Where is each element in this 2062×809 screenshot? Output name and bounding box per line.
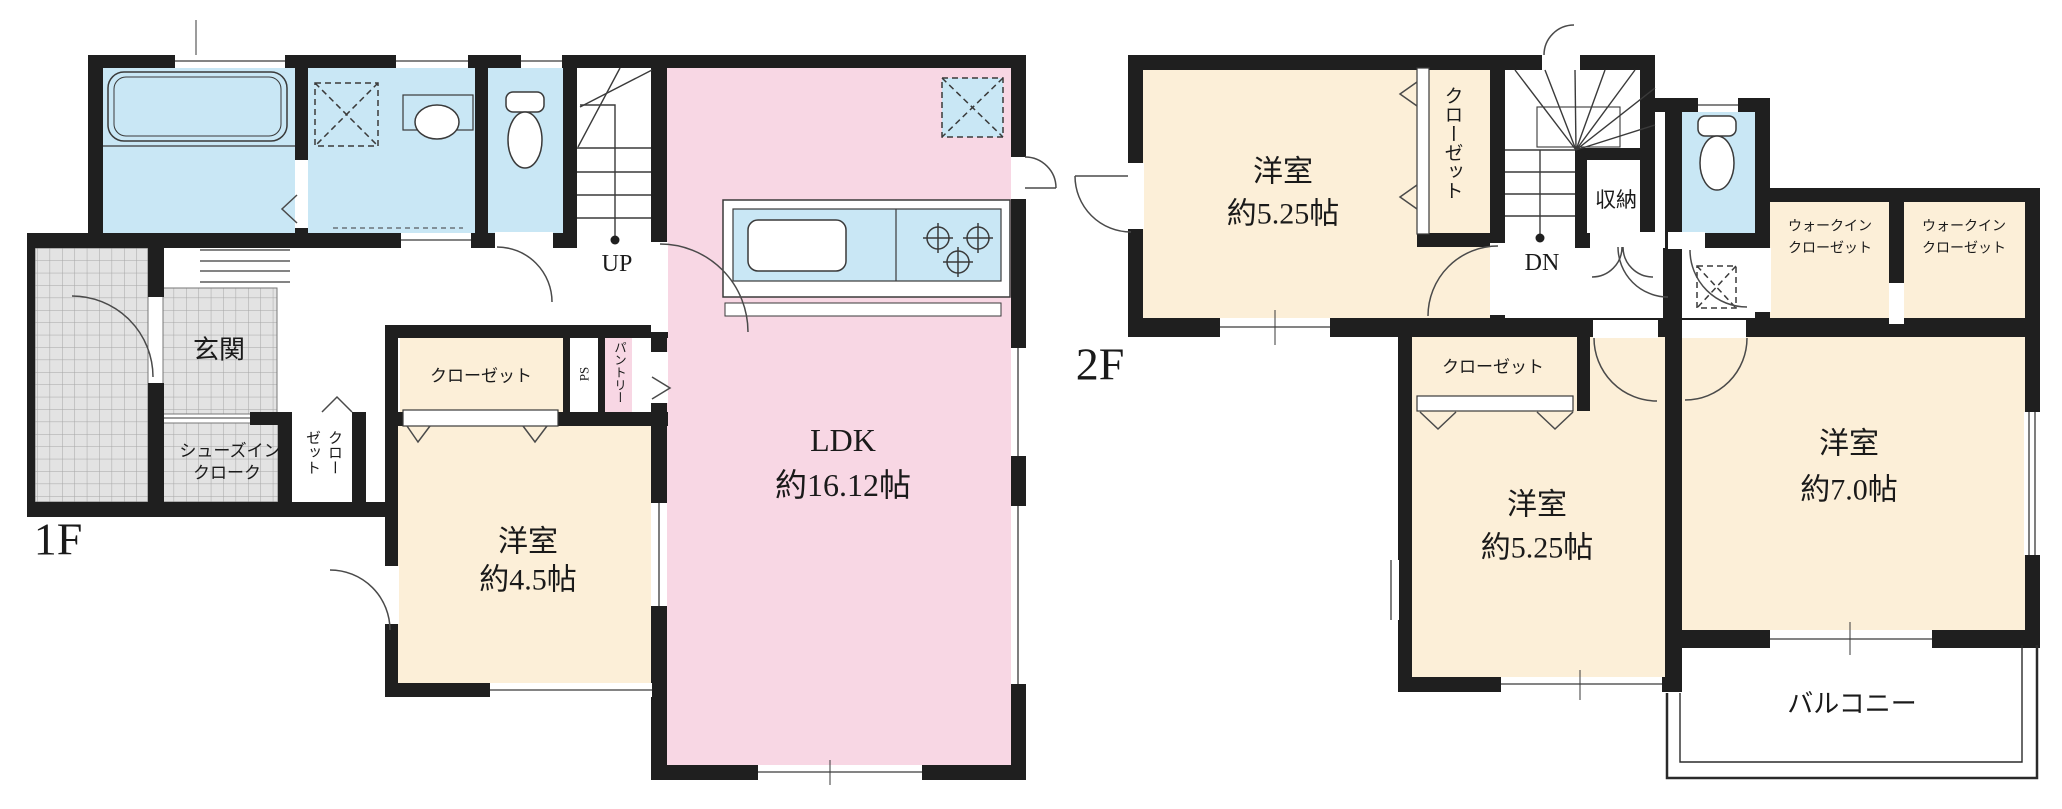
small-closet-label-col1: クロー [326,430,342,475]
shoes-cloak-label-1: シューズイン [179,442,280,461]
small-closet-label-col2: ゼット [304,430,321,475]
pantry-label: パントリー [612,341,626,404]
toilet1f-door-arc [497,247,552,302]
floor-plan-image: 1F 玄関 シューズイン クローク クロー ゼット クローゼット PS パントリ… [0,0,2062,809]
shower-unit-icon [315,83,378,146]
ldk-floor [667,68,1011,765]
ps-label: PS [577,367,592,381]
bedroom70-name: 洋室 [1819,428,1879,461]
bedroom45-name: 洋室 [498,526,558,559]
bathroom-floor [103,68,295,233]
ldk-name: LDK [810,422,876,458]
ldk-size: 約16.12帖 [775,467,911,503]
wic1-label-2: クローゼット [1788,241,1872,257]
closet-mid-label: クローゼット [1442,358,1544,377]
entrance-label: 玄関 [193,336,245,365]
shoes-cloak-tile [163,423,278,502]
wic2-label-2: クローゼット [1922,241,2006,257]
kitchen-sink-icon [748,220,846,271]
floor-plan-svg: 1F 玄関 シューズイン クローク クロー ゼット クローゼット PS パントリ… [0,0,2062,809]
stair-top-door-arc [1544,25,1574,55]
closet1f-label: クローゼット [430,367,532,386]
stairs-dn-label: DN [1525,250,1560,276]
bedroom525b-name: 洋室 [1507,489,1567,522]
bedroom45-size: 約4.5帖 [479,564,577,597]
bedroom525a-exterior-door-arc [1075,176,1131,232]
bedroom525b-size: 約5.25帖 [1481,532,1594,565]
storage-label: 収納 [1595,188,1637,212]
storage-door-right-arc [1623,247,1653,277]
porch-tile [35,248,148,502]
bedroom525a-size: 約5.25帖 [1227,198,1340,231]
small-closet-door-mark [322,397,352,412]
toilet2f-door-arc [1618,247,1668,297]
bedroom70-size: 約7.0帖 [1800,474,1898,507]
shoes-cloak-label-2: クローク [193,464,261,483]
stairs-up-label: UP [602,251,633,277]
balcony-label: バルコニー [1787,690,1916,719]
bedroom45-door-arc [330,570,390,630]
wic2-label-1: ウォークイン [1922,219,2006,235]
floor1-title: 1F [34,514,83,565]
floor2-title: 2F [1076,339,1125,390]
stairs-1f [577,68,652,245]
closet2f-label: クローゼット [1442,86,1463,200]
bedroom525a-name: 洋室 [1253,156,1313,189]
wic1-label-1: ウォークイン [1788,219,1872,235]
toilet1f-icon [506,92,544,168]
toilet2f-icon [1698,116,1736,190]
skylight-icon-1f [942,78,1003,137]
ldk-exterior-door-arc [1025,157,1056,188]
